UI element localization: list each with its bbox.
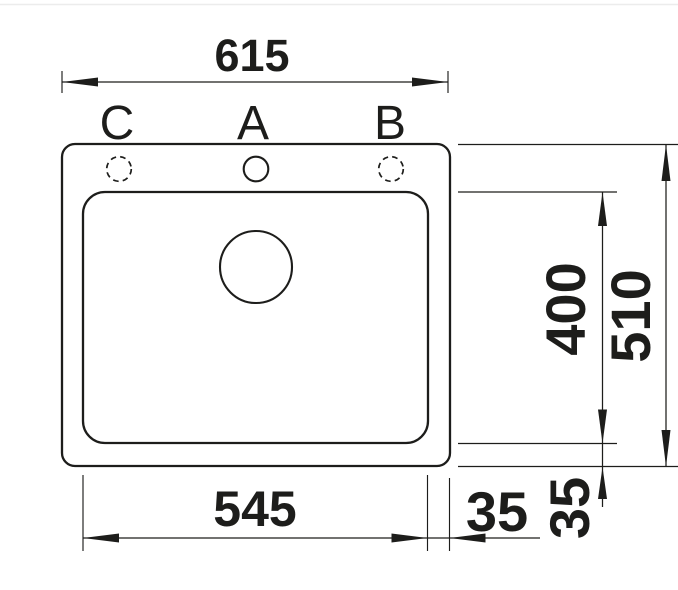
dim-510-arrow-down-icon	[662, 430, 671, 467]
dim-545-arrow-left-icon	[83, 534, 119, 543]
dim-400-arrow-up-icon	[598, 192, 607, 226]
dim-615-label: 615	[214, 30, 289, 81]
dim-400-label: 400	[534, 262, 597, 355]
dim-615-arrow-right-icon	[412, 78, 448, 87]
dim-35-horizontal-label: 35	[466, 480, 528, 543]
dim-510-label: 510	[599, 269, 662, 362]
dim-400-arrow-down-icon	[598, 410, 607, 444]
sink-dimension-drawing: 615 C A B 400 510 35 545 35	[0, 0, 678, 590]
dim-615-arrow-left-icon	[62, 78, 98, 87]
tap-hole-b-label: B	[374, 97, 406, 150]
drawing-canvas: 615 C A B 400 510 35 545 35	[0, 0, 678, 590]
dim-35-vertical-label: 35	[538, 477, 601, 539]
tap-hole-c-label: C	[100, 97, 135, 150]
dim-545-label: 545	[213, 481, 296, 537]
dim-545-arrow-right-icon	[392, 534, 428, 543]
dim-510-arrow-up-icon	[662, 145, 671, 182]
tap-hole-a-label: A	[237, 97, 269, 150]
